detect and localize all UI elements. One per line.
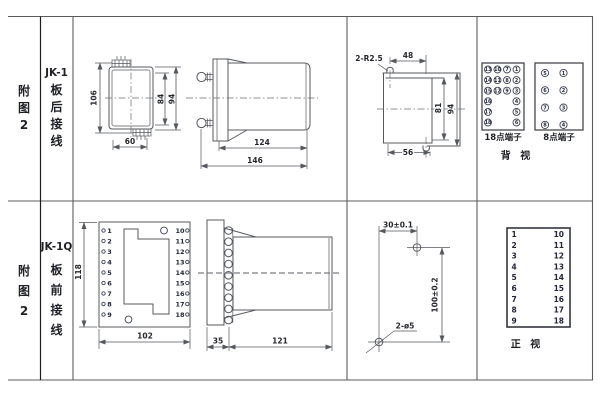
terminal-number: 2 [515, 78, 518, 84]
panel-terminal-dot [102, 281, 105, 284]
panel-terminals-right: 101112131415161718 [175, 227, 189, 319]
terminal-number: 7 [543, 105, 547, 111]
front-box-number: 12 [554, 252, 564, 261]
front-box-number: 5 [512, 273, 517, 282]
front-box-numbers-left: 123456789 [512, 230, 517, 325]
panel-terminal-dot [186, 302, 189, 305]
wiring-char: 前 [50, 280, 62, 300]
figure-char: 图 [18, 281, 30, 301]
figure-char: 附 [18, 261, 30, 281]
terminal-number: 8 [543, 123, 547, 129]
panel-terminal-number: 9 [107, 311, 112, 319]
panel-terminal-number: 12 [175, 248, 184, 256]
panel-terminal-dot [186, 292, 189, 295]
panel-terminal-number: 10 [175, 227, 185, 235]
panel-terminal-dot [186, 281, 189, 284]
front-box-number: 15 [554, 284, 564, 293]
panel-terminal-dot [102, 250, 105, 253]
figure-label-row1: 附 图 2 [8, 16, 40, 201]
terminal-number: 4 [562, 123, 566, 129]
panel-terminal-number: 4 [107, 258, 112, 266]
dim-94b: 94 [447, 104, 456, 114]
rear-side-view: 124 146 [186, 59, 318, 169]
panel-terminal-number: 18 [175, 311, 185, 319]
panel-terminal-dot [102, 302, 105, 305]
screw-head [225, 283, 233, 291]
dim-121: 121 [272, 337, 288, 346]
panel-terminal-number: 2 [107, 237, 112, 245]
panel-terminals-left: 123456789 [102, 227, 112, 319]
panel-terminal-dot [186, 229, 189, 232]
terminal-screw-column [225, 227, 233, 324]
panel-terminal-dot [186, 250, 189, 253]
front-side-view: 35 121 [198, 220, 342, 351]
figure-label-row2: 附 图 2 [8, 201, 40, 380]
front-box-number: 7 [512, 295, 517, 304]
wiring-char: 接 [50, 116, 62, 133]
terminal-grid-18pt: 131071141182151293164175186 [485, 66, 521, 126]
dim-56: 56 [403, 148, 413, 157]
model-name: JK-1Q [41, 241, 73, 253]
front-panel-view: 123456789 101112131415161718 118 102 [74, 222, 190, 349]
screw-head [225, 294, 233, 302]
wiring-char: 线 [50, 320, 62, 340]
screw-head [225, 249, 233, 257]
front-box-number: 1 [512, 230, 517, 239]
wiring-char: 板 [50, 260, 62, 280]
model-label-row1: JK-1 板 后 接 线 [40, 16, 73, 201]
panel-terminal-number: 15 [175, 279, 185, 287]
dim-81: 81 [434, 103, 443, 113]
wiring-char: 线 [50, 133, 62, 150]
front-box-number: 8 [512, 306, 517, 315]
wiring-char: 接 [50, 300, 62, 320]
panel-terminal-dot [186, 260, 189, 263]
front-box-numbers-right: 101112131415161718 [554, 230, 564, 325]
panel-terminal-number: 11 [175, 237, 185, 245]
panel-terminal-number: 5 [107, 269, 112, 277]
terminal-number: 10 [494, 67, 501, 73]
terminal-number: 1 [562, 71, 566, 77]
hole-diameter-note: 2-ø5 [396, 322, 415, 331]
drilling-plan: 30±0.1 100±0.2 2-ø5 [366, 221, 450, 354]
panel-terminal-dot [186, 313, 189, 316]
slot-radius-note: 2-R2.5 [355, 54, 382, 63]
front-view-terminal-box: 123456789 101112131415161718 正 视 [507, 228, 570, 351]
dim-35: 35 [213, 337, 223, 346]
rear-outline-view: 106 84 94 60 [90, 56, 182, 150]
panel-terminal-number: 8 [107, 300, 112, 308]
terminal-number: 5 [515, 110, 518, 116]
front-box-number: 11 [554, 241, 564, 250]
drawing-canvas: 106 84 94 60 [0, 0, 600, 400]
wiring-char: 后 [50, 99, 62, 116]
panel-terminal-dot [102, 260, 105, 263]
panel-terminal-number: 14 [175, 269, 185, 277]
panel-terminal-number: 16 [175, 290, 185, 298]
panel-terminal-dot [186, 239, 189, 242]
terminal-number: 3 [515, 88, 518, 94]
terminal-number: 6 [543, 88, 547, 94]
panel-terminal-number: 7 [107, 290, 112, 298]
terminal-number: 17 [485, 110, 492, 116]
panel-terminal-dot [102, 292, 105, 295]
figure-char: 附 [18, 83, 30, 100]
panel-terminal-dot [186, 271, 189, 274]
wiring-char: 板 [50, 82, 62, 99]
terminal-number: 7 [505, 67, 508, 73]
figure-char: 图 [18, 100, 30, 117]
label-front-view: 正 视 [511, 338, 543, 351]
terminal-number: 1 [515, 67, 518, 73]
panel-terminal-dot [102, 271, 105, 274]
terminal-number: 15 [485, 88, 492, 94]
relay-installation-drawing-page: 106 84 94 60 [0, 0, 600, 400]
mounting-screw [197, 72, 213, 127]
terminal-number: 11 [494, 78, 501, 84]
dim-94: 94 [168, 94, 177, 104]
panel-terminal-number: 17 [175, 300, 184, 308]
front-box-number: 16 [554, 295, 564, 304]
mounting-hole [161, 227, 168, 234]
front-box-number: 2 [512, 241, 517, 250]
dim-60: 60 [125, 137, 135, 146]
terminal-number: 13 [485, 67, 492, 73]
label-18pt-terminal: 18点端子 [484, 132, 522, 143]
terminal-number: 14 [485, 78, 492, 84]
panel-terminal-number: 6 [107, 279, 112, 287]
front-box-number: 10 [554, 230, 564, 239]
terminal-number: 3 [562, 105, 566, 111]
dim-30: 30±0.1 [383, 221, 413, 230]
front-box-number: 17 [554, 306, 564, 315]
front-box-number: 13 [554, 262, 564, 271]
figure-char: 2 [20, 117, 28, 134]
dim-106: 106 [90, 90, 99, 106]
panel-terminal-dot [102, 313, 105, 316]
label-rear-view: 背 视 [501, 149, 533, 162]
dim-102: 102 [137, 332, 153, 341]
terminal-number: 16 [485, 99, 492, 105]
dim-124: 124 [254, 138, 270, 147]
terminal-grid-8pt: 51627384 [541, 69, 567, 128]
panel-terminal-number: 1 [107, 227, 112, 235]
front-box-number: 6 [512, 284, 517, 293]
screw-head [225, 238, 233, 246]
model-name: JK-1 [45, 67, 68, 79]
terminal-number: 12 [494, 88, 501, 94]
panel-terminal-number: 13 [175, 258, 184, 266]
dim-84: 84 [157, 94, 166, 104]
rear-terminal-views: 131071141182151293164175186 51627384 18点… [482, 63, 583, 162]
panel-terminal-number: 3 [107, 248, 112, 256]
panel-terminal-dot [102, 229, 105, 232]
screw-head [225, 305, 233, 313]
dim-48: 48 [403, 51, 413, 60]
front-box-number: 4 [512, 262, 517, 271]
dim-118: 118 [74, 264, 83, 280]
terminal-number: 18 [485, 120, 492, 126]
screw-head [225, 260, 233, 268]
dim-146: 146 [247, 156, 263, 165]
front-box-number: 3 [512, 252, 517, 261]
front-box-number: 9 [512, 316, 517, 325]
terminal-number: 5 [543, 71, 547, 77]
figure-char: 2 [20, 301, 28, 321]
dim-100: 100±0.2 [431, 277, 440, 312]
panel-cutout-view: 2-R2.5 48 56 81 94 [355, 51, 466, 158]
front-box-number: 14 [554, 273, 564, 282]
mounting-hole [125, 316, 132, 323]
label-8pt-terminal: 8点端子 [543, 132, 575, 143]
panel-terminal-dot [102, 239, 105, 242]
front-box-number: 18 [554, 316, 564, 325]
terminal-number: 2 [562, 88, 566, 94]
model-label-row2: JK-1Q 板 前 接 线 [40, 201, 73, 380]
